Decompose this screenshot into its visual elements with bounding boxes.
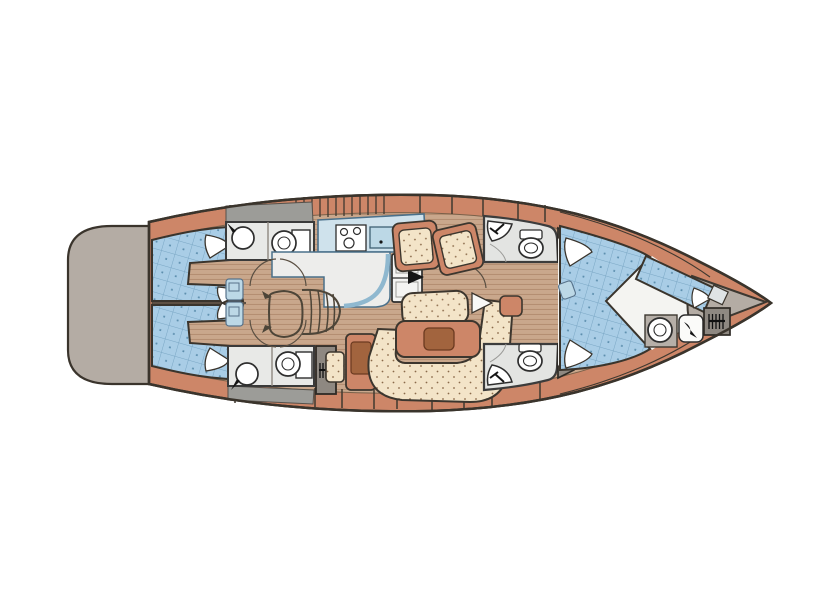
- salon-table-inlay: [424, 328, 454, 350]
- swim-platform: [68, 226, 152, 384]
- toilet-icon: [648, 318, 672, 342]
- bow-sink-icon: [679, 315, 703, 342]
- drain: [379, 240, 382, 243]
- sink-icon: [236, 363, 258, 385]
- corridor-stool: [500, 296, 522, 316]
- armchair-starboard-1: [392, 220, 440, 272]
- sink-icon: [232, 227, 254, 249]
- toilet-icon: [518, 351, 542, 371]
- toilet-icon: [519, 238, 543, 258]
- nav-seat: [326, 352, 344, 382]
- companionway-seat-lockers: [226, 279, 243, 326]
- aft-head-port: [228, 346, 314, 404]
- yacht-floor-plan: [0, 0, 829, 600]
- galley-sink-icon: [370, 227, 394, 248]
- floor-plan-canvas: [0, 0, 829, 600]
- toilet-icon: [276, 352, 300, 376]
- armchair-starboard-2: [431, 222, 484, 277]
